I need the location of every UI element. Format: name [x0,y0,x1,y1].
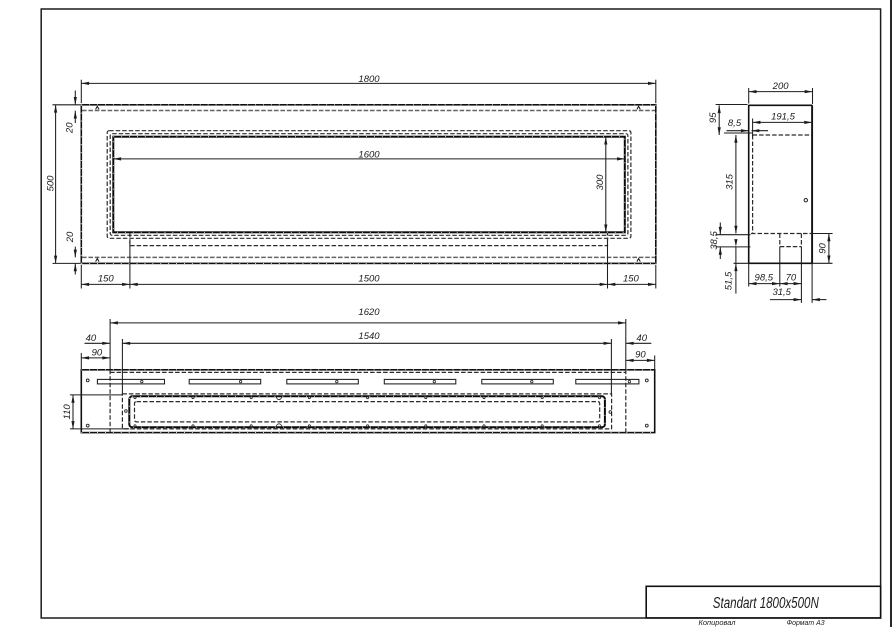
svg-text:31,5: 31,5 [772,287,791,298]
svg-text:Копировал: Копировал [699,620,736,627]
svg-text:200: 200 [772,81,790,92]
svg-text:191,5: 191,5 [771,112,795,123]
svg-text:315: 315 [724,173,735,190]
svg-text:Standart 1800x500N: Standart 1800x500N [713,595,820,612]
svg-text:8,5: 8,5 [728,118,742,129]
svg-text:90: 90 [635,349,646,360]
svg-text:150: 150 [98,274,115,285]
svg-text:110: 110 [62,404,73,420]
svg-text:300: 300 [595,174,606,191]
svg-text:70: 70 [786,272,797,283]
svg-text:1800: 1800 [358,74,380,85]
svg-text:1540: 1540 [358,331,380,342]
svg-text:40: 40 [86,333,97,344]
svg-text:38,5: 38,5 [709,231,720,250]
svg-text:20: 20 [65,122,76,134]
svg-text:51,5: 51,5 [723,271,734,290]
svg-text:1500: 1500 [358,274,380,285]
svg-text:150: 150 [623,274,640,285]
svg-text:95: 95 [708,112,719,123]
svg-text:500: 500 [45,175,56,192]
svg-text:40: 40 [636,333,647,344]
svg-text:98,5: 98,5 [755,272,774,283]
svg-text:1620: 1620 [358,307,380,318]
svg-text:90: 90 [818,243,829,254]
svg-text:Формат А3: Формат А3 [787,620,825,627]
svg-text:90: 90 [92,348,103,359]
svg-text:1600: 1600 [358,150,380,161]
svg-text:20: 20 [65,231,76,243]
